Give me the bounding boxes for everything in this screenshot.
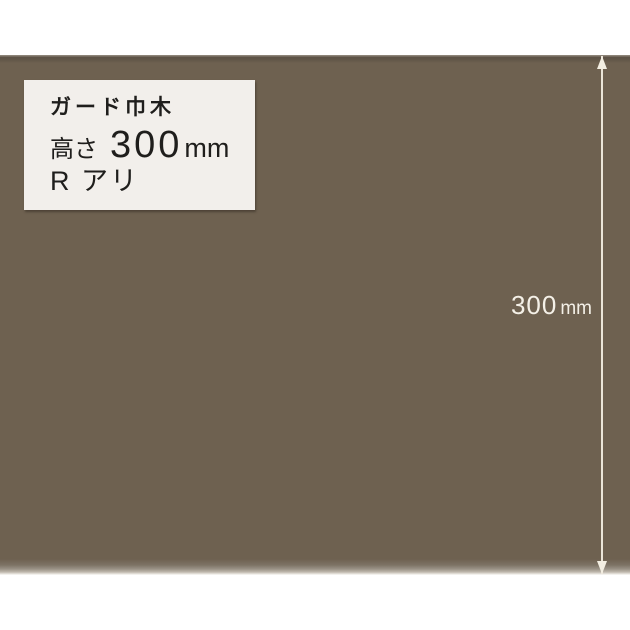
- product-name: ガード巾木: [50, 97, 255, 118]
- height-label: 高さ: [50, 138, 98, 162]
- arrow-up-icon: [597, 56, 607, 69]
- product-swatch-image: ガード巾木 高さ 300 mm R アリ 300 mm: [0, 0, 630, 630]
- arrow-down-icon: [597, 561, 607, 574]
- dimension-label: 300 mm: [511, 292, 592, 318]
- spec-label-box: ガード巾木 高さ 300 mm R アリ: [24, 80, 255, 210]
- height-unit: mm: [184, 135, 229, 162]
- r-availability-note: R アリ: [50, 168, 255, 195]
- material-swatch: ガード巾木 高さ 300 mm R アリ 300 mm: [0, 55, 630, 575]
- dimension-value: 300: [511, 292, 557, 318]
- height-spec-line: 高さ 300 mm: [50, 126, 255, 164]
- height-value: 300: [110, 126, 182, 164]
- dimension-unit: mm: [560, 299, 592, 318]
- dimension-line: [601, 56, 603, 574]
